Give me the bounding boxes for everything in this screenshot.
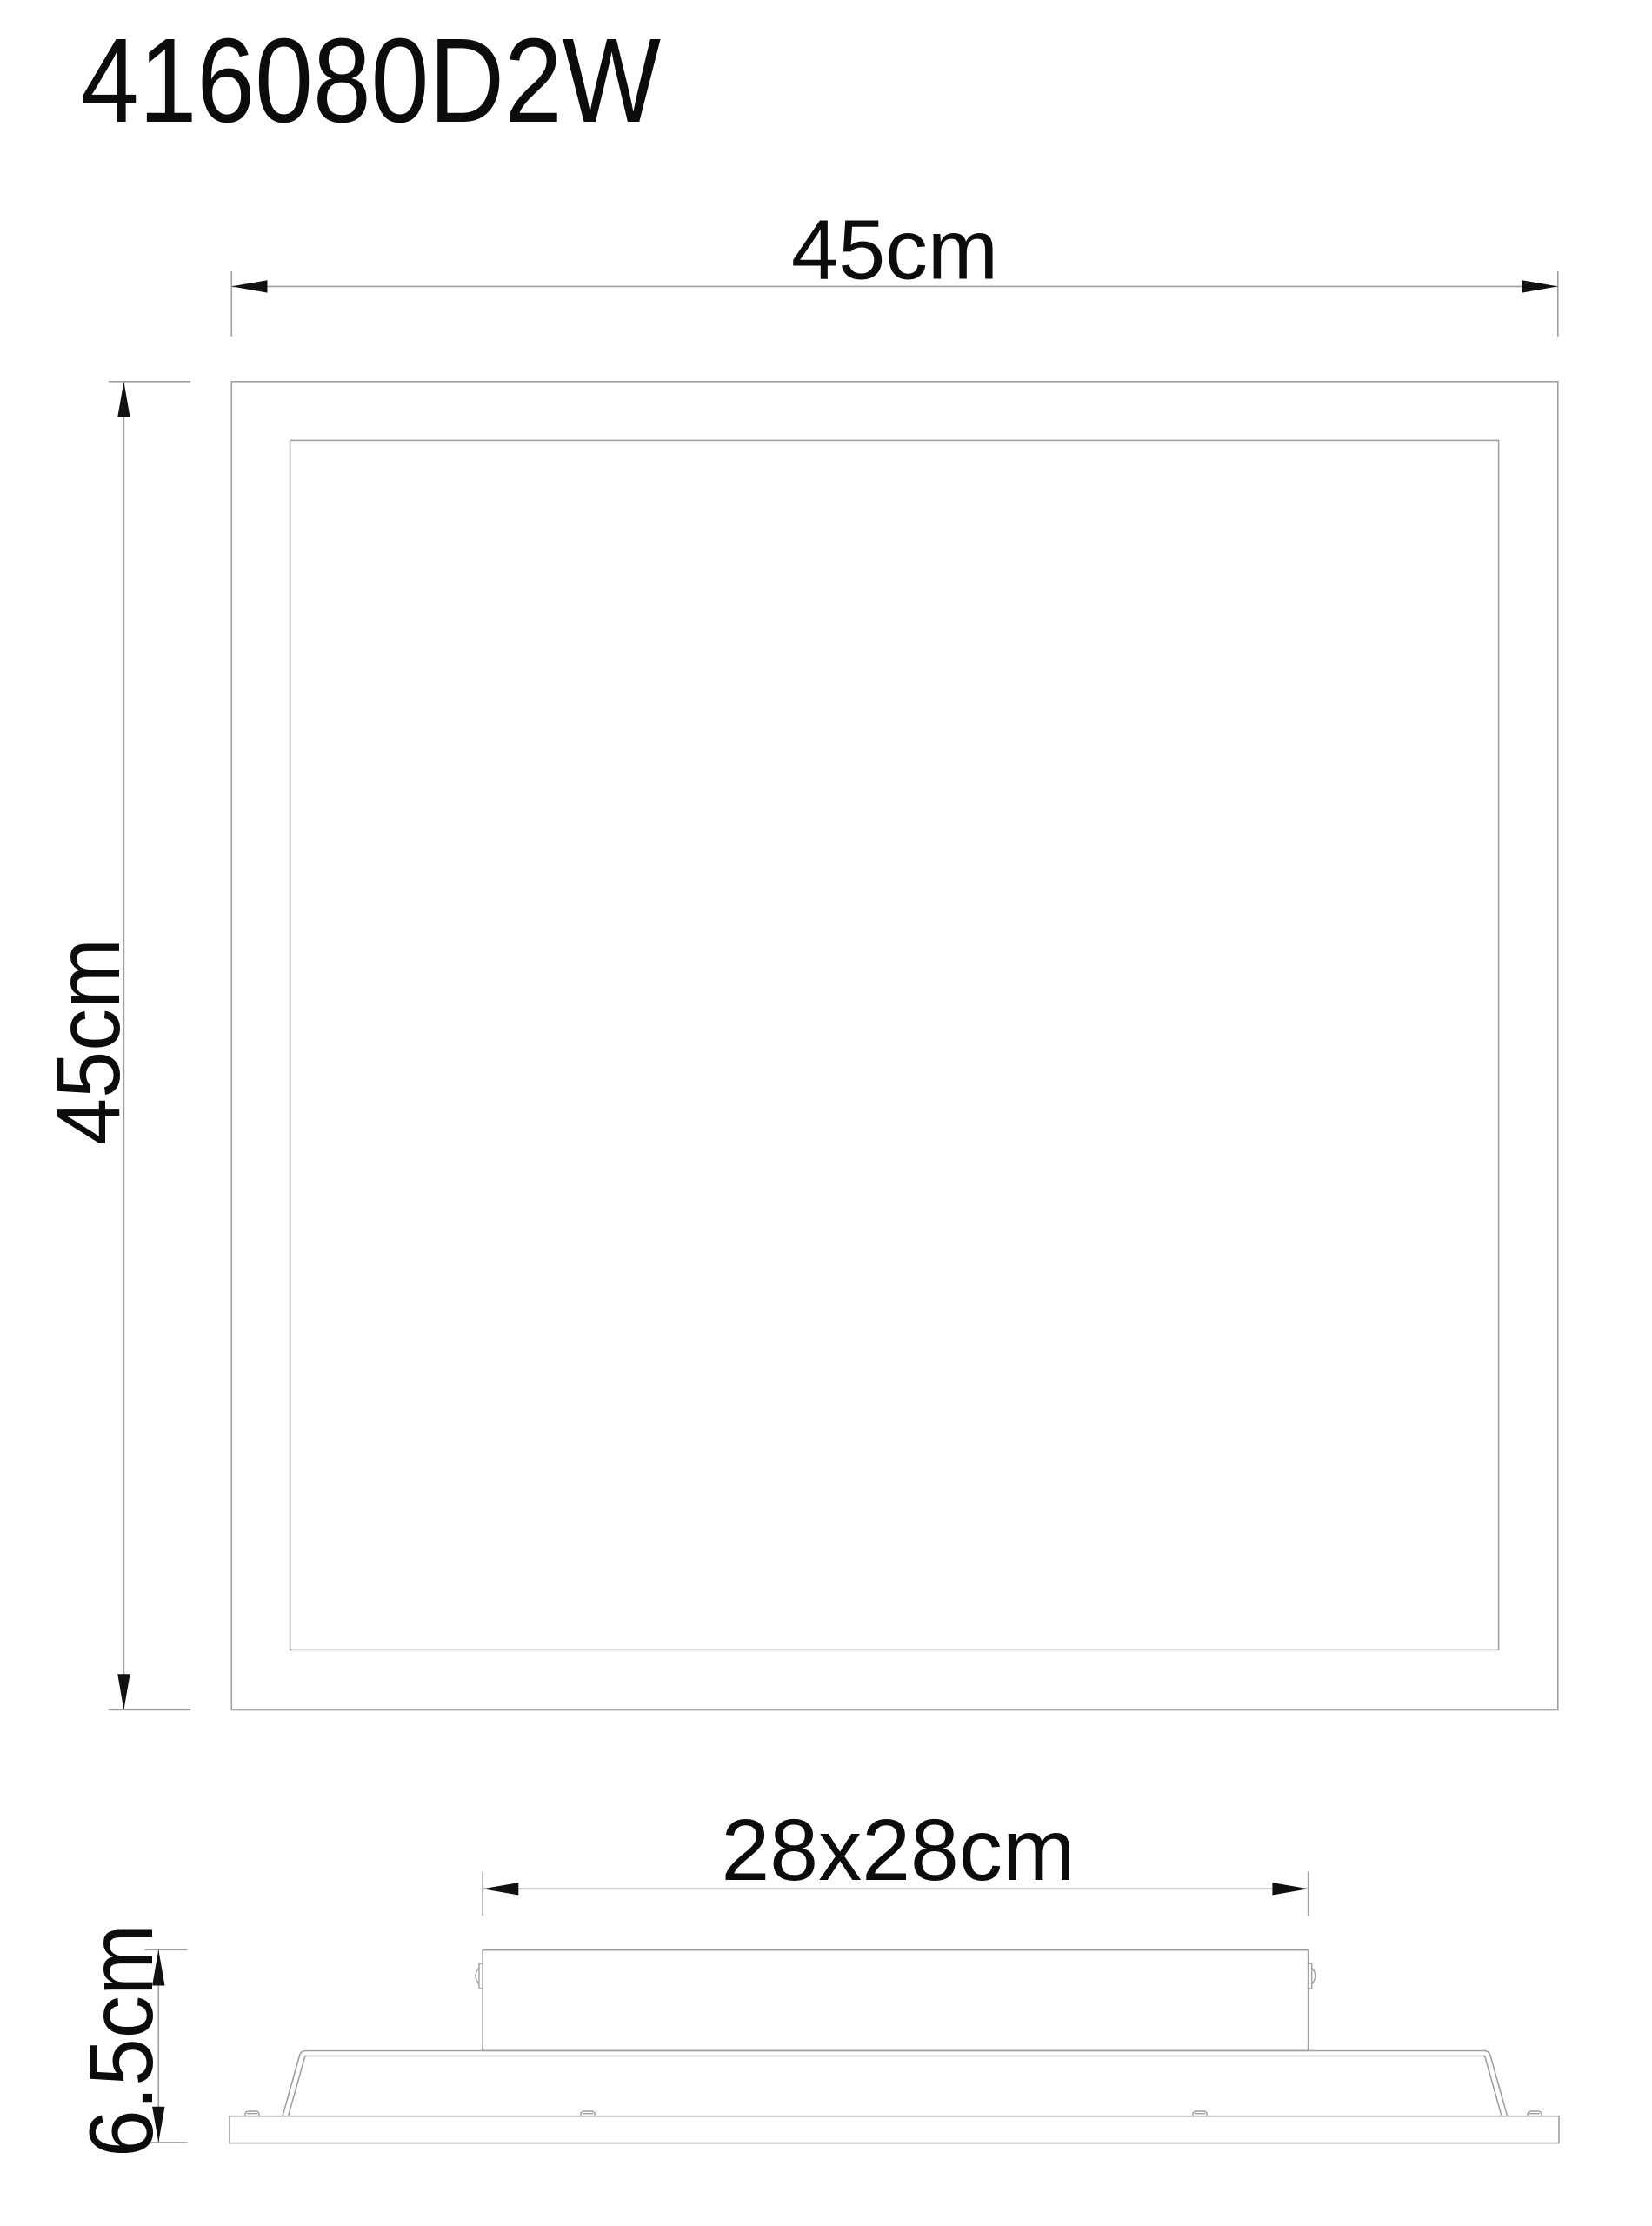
svg-text:45cm: 45cm: [38, 938, 139, 1145]
svg-text:28x28cm: 28x28cm: [722, 1802, 1076, 1899]
svg-text:416080D2W: 416080D2W: [81, 14, 661, 148]
svg-text:45cm: 45cm: [791, 203, 998, 297]
svg-text:6.5cm: 6.5cm: [71, 1924, 172, 2157]
